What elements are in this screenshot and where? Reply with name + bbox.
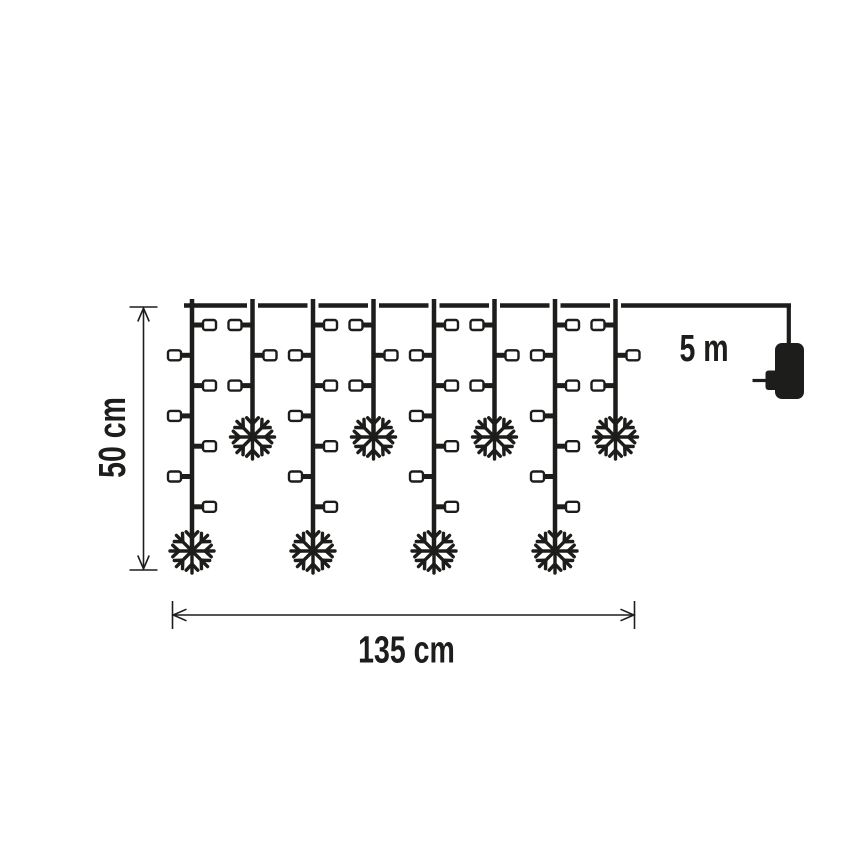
- snowflake-icon: [533, 529, 577, 573]
- bulb-icon: [192, 381, 216, 391]
- bulb-icon: [555, 381, 579, 391]
- bulb-icon: [592, 381, 616, 391]
- bulb-icon: [192, 441, 216, 451]
- light-strand-long: [410, 299, 458, 573]
- bulb-icon: [350, 381, 374, 391]
- bulb-icon: [555, 502, 579, 512]
- bulb-icon: [313, 441, 337, 451]
- bulb-icon: [229, 320, 253, 330]
- bulb-icon: [289, 472, 313, 482]
- bulb-icon: [434, 441, 458, 451]
- bulb-icon: [313, 320, 337, 330]
- light-strand-short: [592, 299, 640, 459]
- width-dimension-label: 135 cm: [358, 630, 455, 672]
- cable-length-label: 5 m: [679, 328, 728, 370]
- plug-body: [775, 343, 804, 399]
- bulb-icon: [592, 320, 616, 330]
- bulb-icon: [350, 320, 374, 330]
- snowflake-icon: [231, 415, 275, 459]
- bulb-icon: [555, 320, 579, 330]
- light-strands: [168, 299, 640, 573]
- snowflake-icon: [412, 529, 456, 573]
- bulb-icon: [471, 381, 495, 391]
- width-dimension: [173, 601, 635, 629]
- bulb-icon: [531, 350, 555, 360]
- light-strand-short: [229, 299, 277, 459]
- bulb-icon: [616, 350, 640, 360]
- diagram-canvas: 50 cm 135 cm 5 m: [0, 0, 868, 868]
- light-strand-short: [350, 299, 398, 459]
- light-strand-long: [168, 299, 216, 573]
- snowflake-icon: [170, 529, 214, 573]
- bulb-icon: [168, 472, 192, 482]
- light-strand-short: [471, 299, 519, 459]
- bulb-icon: [168, 350, 192, 360]
- bulb-icon: [410, 472, 434, 482]
- bulb-icon: [192, 502, 216, 512]
- light-strand-long: [531, 299, 579, 573]
- bulb-icon: [313, 381, 337, 391]
- bulb-icon: [495, 350, 519, 360]
- snowflake-icon: [594, 415, 638, 459]
- bulb-icon: [434, 502, 458, 512]
- height-dimension-label: 50 cm: [92, 397, 134, 478]
- bulb-icon: [434, 320, 458, 330]
- snowflake-icon: [352, 415, 396, 459]
- bulb-icon: [253, 350, 277, 360]
- bulb-icon: [229, 381, 253, 391]
- snowflake-icon: [291, 529, 335, 573]
- bulb-icon: [555, 441, 579, 451]
- bulb-icon: [531, 472, 555, 482]
- bulb-icon: [471, 320, 495, 330]
- bulb-icon: [313, 502, 337, 512]
- bulb-icon: [289, 350, 313, 360]
- bulb-icon: [410, 411, 434, 421]
- bulb-icon: [374, 350, 398, 360]
- light-strand-long: [289, 299, 337, 573]
- bulb-icon: [192, 320, 216, 330]
- bulb-icon: [434, 381, 458, 391]
- bulb-icon: [410, 350, 434, 360]
- snowflake-icon: [473, 415, 517, 459]
- power-plug-icon: [753, 343, 805, 399]
- bulb-icon: [531, 411, 555, 421]
- bulb-icon: [289, 411, 313, 421]
- bulb-icon: [168, 411, 192, 421]
